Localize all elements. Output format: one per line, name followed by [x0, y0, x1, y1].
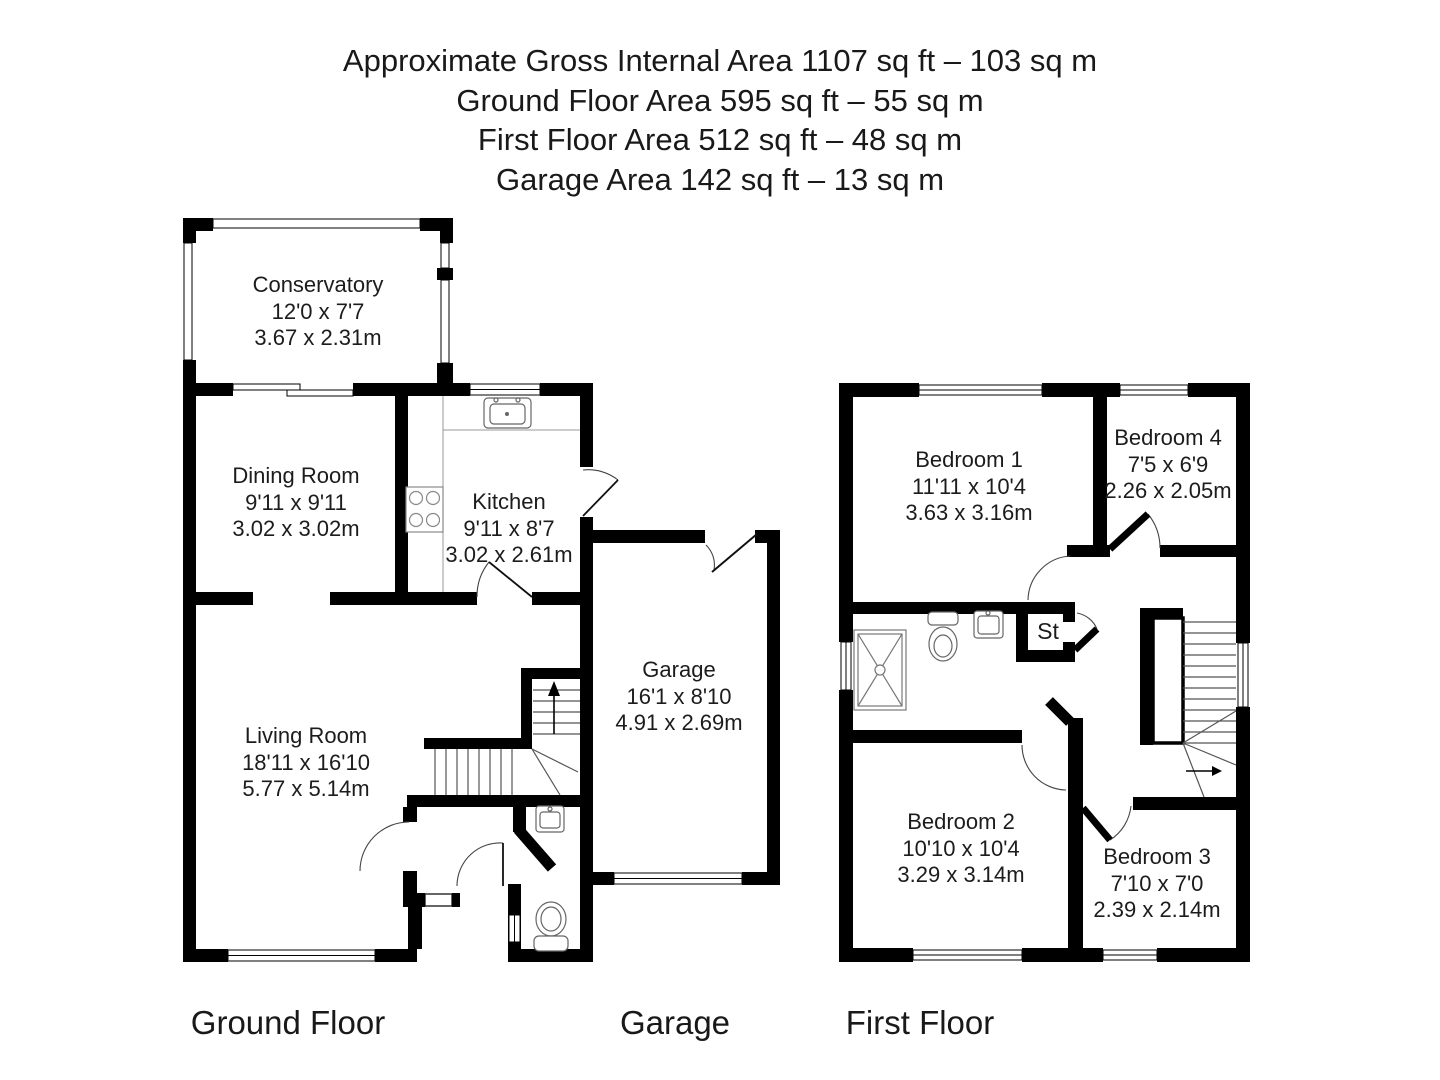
room-label-bedroom-4: Bedroom 4 7'5 x 6'9 2.26 x 2.05m: [1104, 425, 1231, 505]
bathroom-toilet-icon: [928, 612, 958, 661]
room-size-metric: 4.91 x 2.69m: [615, 710, 742, 737]
floor-label-first: First Floor: [846, 1004, 995, 1042]
door-leaf: [1083, 808, 1110, 840]
room-name: Garage: [615, 657, 742, 684]
room-size-imperial: 9'11 x 9'11: [232, 490, 359, 517]
room-label-bedroom-1: Bedroom 1 11'11 x 10'4 3.63 x 3.16m: [905, 447, 1032, 527]
room-label-bedroom-2: Bedroom 2 10'10 x 10'4 3.29 x 3.14m: [897, 809, 1024, 889]
wc-toilet-icon: [534, 902, 568, 951]
room-size-metric: 2.39 x 2.14m: [1093, 897, 1220, 924]
door-leaf: [712, 534, 757, 572]
shower-icon: [854, 630, 906, 710]
room-size-metric: 2.26 x 2.05m: [1104, 478, 1231, 505]
room-size-metric: 3.29 x 3.14m: [897, 862, 1024, 889]
room-label-living-room: Living Room 18'11 x 16'10 5.77 x 5.14m: [242, 723, 370, 803]
bathroom-sink-icon: [974, 611, 1003, 638]
room-label-kitchen: Kitchen 9'11 x 8'7 3.02 x 2.61m: [445, 489, 572, 569]
door-leaf: [1075, 629, 1097, 650]
room-label-conservatory: Conservatory 12'0 x 7'7 3.67 x 2.31m: [253, 272, 384, 352]
door-arcs-first: [1022, 514, 1160, 840]
room-label-dining-room: Dining Room 9'11 x 9'11 3.02 x 3.02m: [232, 463, 359, 543]
door-arc: [1028, 556, 1070, 600]
door-arc: [706, 545, 714, 570]
door-arc: [1077, 613, 1097, 629]
stairs-down-arrow-icon: [1186, 766, 1222, 776]
wc-sink-icon: [536, 806, 564, 832]
floor-label-garage: Garage: [620, 1004, 730, 1042]
room-size-imperial: 18'11 x 16'10: [242, 750, 370, 777]
hob-icon: [406, 487, 443, 532]
door-arc: [1110, 806, 1131, 840]
room-size-imperial: 16'1 x 8'10: [615, 684, 742, 711]
title-line-4: Garage Area 142 sq ft – 13 sq m: [0, 160, 1440, 200]
angled-wall: [1049, 701, 1070, 722]
room-name: Bedroom 2: [897, 809, 1024, 836]
room-size-metric: 3.67 x 2.31m: [253, 325, 384, 352]
room-size-imperial: 11'11 x 10'4: [905, 474, 1032, 501]
wall-bed2-bed3: [1068, 718, 1083, 962]
room-size-imperial: 9'11 x 8'7: [445, 516, 572, 543]
door-arc: [1022, 745, 1066, 790]
room-size-imperial: 7'10 x 7'0: [1093, 871, 1220, 898]
door-arc: [360, 822, 409, 871]
floor-label-ground: Ground Floor: [191, 1004, 385, 1042]
room-size-imperial: 12'0 x 7'7: [253, 299, 384, 326]
door-arc: [583, 470, 618, 480]
door-arc: [457, 843, 503, 886]
kitchen-sink-icon: [484, 398, 531, 428]
front-door: [425, 894, 452, 906]
room-size-imperial: 7'5 x 6'9: [1104, 452, 1231, 479]
room-size-metric: 3.02 x 2.61m: [445, 542, 572, 569]
room-size-metric: 3.63 x 3.16m: [905, 500, 1032, 527]
title-line-3: First Floor Area 512 sq ft – 48 sq m: [0, 120, 1440, 160]
room-size-metric: 5.77 x 5.14m: [242, 776, 370, 803]
door-leaf: [1110, 514, 1148, 549]
stairwell-void: [1153, 618, 1183, 743]
room-name: Living Room: [242, 723, 370, 750]
title-line-2: Ground Floor Area 595 sq ft – 55 sq m: [0, 81, 1440, 121]
floorplan-page: Approximate Gross Internal Area 1107 sq …: [0, 0, 1440, 1080]
door-arc: [1148, 514, 1160, 548]
stairs-up-arrow-icon: [548, 681, 560, 734]
ground-floor-plan: [183, 218, 618, 962]
room-label-store: St: [1037, 618, 1059, 645]
angled-wall: [518, 829, 552, 868]
room-name: Kitchen: [445, 489, 572, 516]
room-name: Bedroom 1: [905, 447, 1032, 474]
room-label-bedroom-3: Bedroom 3 7'10 x 7'0 2.39 x 2.14m: [1093, 844, 1220, 924]
title-block: Approximate Gross Internal Area 1107 sq …: [0, 41, 1440, 199]
room-size-metric: 3.02 x 3.02m: [232, 516, 359, 543]
room-size-imperial: 10'10 x 10'4: [897, 836, 1024, 863]
room-name: Dining Room: [232, 463, 359, 490]
title-line-1: Approximate Gross Internal Area 1107 sq …: [0, 41, 1440, 81]
room-name: Bedroom 4: [1104, 425, 1231, 452]
room-name: Bedroom 3: [1093, 844, 1220, 871]
room-name: Conservatory: [253, 272, 384, 299]
patio-sliding-door: [233, 384, 353, 396]
room-label-garage: Garage 16'1 x 8'10 4.91 x 2.69m: [615, 657, 742, 737]
door-leaf: [583, 480, 618, 516]
